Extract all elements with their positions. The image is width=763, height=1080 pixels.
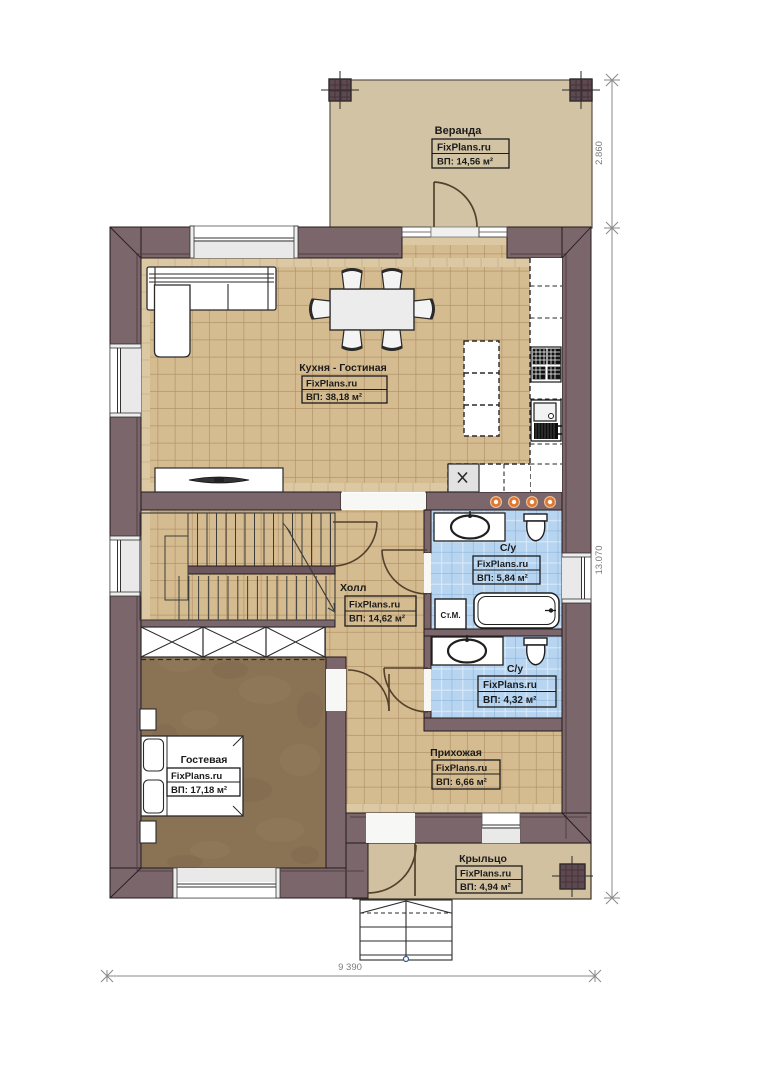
svg-text:Веранда: Веранда	[435, 125, 483, 137]
svg-text:Крыльцо: Крыльцо	[459, 853, 507, 865]
svg-text:FixPlans.ru: FixPlans.ru	[477, 559, 528, 570]
svg-text:FixPlans.ru: FixPlans.ru	[171, 771, 222, 782]
svg-text:ВП: 17,18 м²: ВП: 17,18 м²	[171, 785, 227, 796]
svg-text:13.070: 13.070	[594, 545, 605, 574]
svg-text:FixPlans.ru: FixPlans.ru	[460, 869, 511, 880]
svg-text:FixPlans.ru: FixPlans.ru	[306, 379, 357, 390]
svg-text:Гостевая: Гостевая	[181, 754, 228, 766]
svg-text:FixPlans.ru: FixPlans.ru	[437, 143, 491, 154]
svg-text:ВП: 38,18 м²: ВП: 38,18 м²	[306, 392, 362, 403]
svg-text:2.860: 2.860	[594, 141, 605, 165]
svg-text:FixPlans.ru: FixPlans.ru	[483, 680, 537, 691]
svg-text:ВП: 5,84 м²: ВП: 5,84 м²	[477, 573, 528, 584]
svg-text:ВП: 14,56 м²: ВП: 14,56 м²	[437, 157, 493, 168]
svg-text:Холл: Холл	[340, 582, 366, 594]
svg-text:FixPlans.ru: FixPlans.ru	[436, 763, 487, 774]
svg-text:Прихожая: Прихожая	[430, 747, 482, 759]
svg-text:Кухня - Гостиная: Кухня - Гостиная	[299, 362, 386, 374]
svg-text:ВП: 6,66 м²: ВП: 6,66 м²	[436, 777, 487, 788]
svg-text:FixPlans.ru: FixPlans.ru	[349, 600, 400, 611]
svg-text:9 390: 9 390	[338, 962, 362, 973]
svg-text:С/у: С/у	[507, 663, 524, 675]
svg-text:ВП: 4,94 м²: ВП: 4,94 м²	[460, 882, 511, 893]
svg-text:ВП: 4,32 м²: ВП: 4,32 м²	[483, 695, 537, 706]
svg-text:С/у: С/у	[500, 542, 517, 554]
svg-text:ВП: 14,62 м²: ВП: 14,62 м²	[349, 614, 405, 625]
svg-text:Ст.М.: Ст.М.	[440, 611, 460, 620]
